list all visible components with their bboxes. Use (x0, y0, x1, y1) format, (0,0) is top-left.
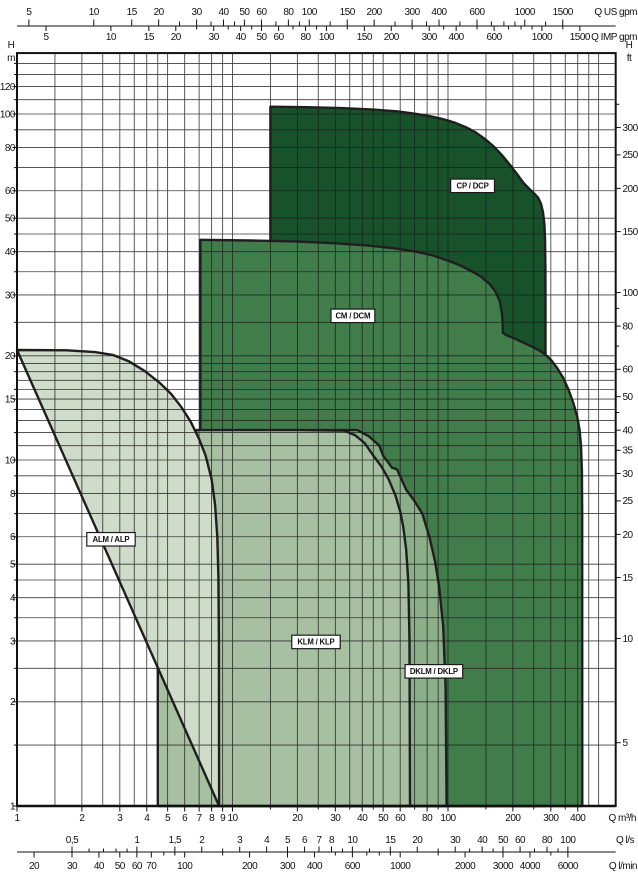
tick-label: 15 (623, 573, 634, 584)
tick-label: 50 (239, 7, 250, 18)
tick-label: 60 (623, 365, 634, 376)
tick-label: 80 (283, 7, 294, 18)
tick-label: 600 (345, 861, 361, 872)
axis-unit-lmin: Q l/min (609, 861, 637, 872)
tick-label: 100 (0, 109, 16, 120)
region-label-text: DKLM / DKLP (410, 667, 458, 676)
tick-label: 300 (404, 7, 420, 18)
tick-label: 300 (422, 32, 438, 43)
tick-label: 1000 (532, 32, 553, 43)
tick-label: 40 (94, 861, 105, 872)
tick-label: 15 (385, 835, 396, 846)
tick-label: 70 (146, 861, 157, 872)
tick-label: 6000 (558, 861, 579, 872)
tick-label: 40 (623, 426, 634, 437)
tick-label: 10 (5, 455, 16, 466)
tick-label: 0,5 (66, 835, 79, 846)
tick-label: 600 (469, 7, 485, 18)
tick-label: 40 (477, 835, 488, 846)
tick-label: 150 (623, 227, 638, 238)
tick-label: 30 (623, 469, 634, 480)
tick-label: 1000 (515, 7, 536, 18)
tick-label: 1500 (553, 7, 574, 18)
axis-head-ft: ft (627, 53, 632, 64)
tick-label: 300 (543, 813, 559, 824)
tick-label: 400 (431, 7, 447, 18)
tick-label: 50 (623, 392, 634, 403)
tick-label: 60 (5, 186, 16, 197)
region-label-cm-dcm: CM / DCM (331, 309, 375, 323)
tick-label: 60 (256, 7, 267, 18)
tick-label: 20 (154, 7, 165, 18)
tick-label: 100 (623, 288, 638, 299)
tick-label: 300 (280, 861, 296, 872)
tick-label: 60 (395, 813, 406, 824)
region-label-klm-klp: KLM / KLP (292, 635, 340, 649)
tick-label: 10 (623, 634, 634, 645)
tick-label: 100 (560, 835, 576, 846)
tick-label: 15 (144, 32, 155, 43)
region-label-text: ALM / ALP (93, 535, 130, 544)
tick-label: 15 (127, 7, 138, 18)
region-label-text: CM / DCM (336, 312, 371, 321)
tick-label: 300 (623, 123, 638, 134)
tick-label: 2000 (455, 861, 476, 872)
tick-label: 200 (242, 861, 258, 872)
tick-label: 30 (5, 290, 16, 301)
tick-label: 200 (367, 7, 383, 18)
tick-label: 50 (378, 813, 389, 824)
region-label-cp-dcp: CP / DCP (451, 179, 495, 193)
tick-label: 10 (89, 7, 100, 18)
tick-label: 400 (307, 861, 323, 872)
tick-label: 20 (29, 861, 40, 872)
tick-label: 80 (542, 835, 553, 846)
tick-label: 200 (623, 184, 638, 195)
tick-label: 35 (623, 446, 634, 457)
tick-label: 200 (384, 32, 400, 43)
tick-label: 40 (236, 32, 247, 43)
tick-label: 400 (570, 813, 586, 824)
tick-label: 10 (106, 32, 117, 43)
tick-label: 100 (319, 32, 335, 43)
tick-label: 30 (330, 813, 341, 824)
region-label-text: KLM / KLP (297, 638, 334, 647)
tick-label: 80 (422, 813, 433, 824)
tick-label: 50 (5, 214, 16, 225)
tick-label: 15 (5, 394, 16, 405)
tick-label: 40 (357, 813, 368, 824)
tick-label: 100 (177, 861, 193, 872)
tick-label: 40 (218, 7, 229, 18)
tick-label: 60 (132, 861, 143, 872)
axis-head-m: m (7, 53, 15, 64)
tick-label: 50 (115, 861, 126, 872)
tick-label: 50 (256, 32, 267, 43)
region-label-dklm-dklp: DKLM / DKLP (405, 665, 463, 679)
tick-label: 10 (347, 835, 358, 846)
tick-label: 30 (209, 32, 220, 43)
tick-label: 1,5 (169, 835, 182, 846)
tick-label: 25 (623, 496, 634, 507)
pump-coverage-svg: ALM / ALPKLM / KLPDKLM / DKLPCM / DCMCP … (0, 0, 638, 880)
tick-label: 30 (450, 835, 461, 846)
tick-label: 60 (274, 32, 285, 43)
tick-label: 20 (292, 813, 303, 824)
axis-head-h-right: H (626, 40, 633, 51)
tick-label: 150 (357, 32, 373, 43)
tick-label: 250 (623, 150, 638, 161)
tick-label: 20 (623, 530, 634, 541)
tick-label: 20 (412, 835, 423, 846)
tick-label: 1000 (390, 861, 411, 872)
tick-label: 120 (0, 82, 16, 93)
tick-label: 150 (340, 7, 356, 18)
tick-label: 3000 (493, 861, 514, 872)
axis-unit-m3h: Q m³/h (608, 813, 636, 824)
tick-label: 60 (515, 835, 526, 846)
tick-label: 20 (5, 351, 16, 362)
tick-label: 80 (5, 143, 16, 154)
tick-label: 4000 (520, 861, 541, 872)
tick-label: 80 (623, 321, 634, 332)
tick-label: 400 (449, 32, 465, 43)
tick-label: 100 (302, 7, 318, 18)
tick-label: 50 (498, 835, 509, 846)
axis-unit-ls: Q l/s (616, 835, 635, 846)
region-label-text: CP / DCP (457, 182, 489, 191)
tick-label: 1500 (570, 32, 591, 43)
tick-label: 100 (440, 813, 456, 824)
tick-label: 30 (67, 861, 78, 872)
tick-label: 10 (227, 813, 238, 824)
pump-coverage-chart: ALM / ALPKLM / KLPDKLM / DKLPCM / DCMCP … (0, 0, 638, 880)
tick-label: 40 (5, 247, 16, 258)
axis-unit-us-gpm: Q US gpm (594, 7, 637, 18)
tick-label: 20 (171, 32, 182, 43)
tick-label: 30 (192, 7, 203, 18)
tick-label: 200 (505, 813, 521, 824)
axis-head-h-left: H (8, 40, 15, 51)
region-label-alm-alp: ALM / ALP (87, 533, 135, 547)
tick-label: 600 (487, 32, 503, 43)
tick-label: 80 (300, 32, 311, 43)
